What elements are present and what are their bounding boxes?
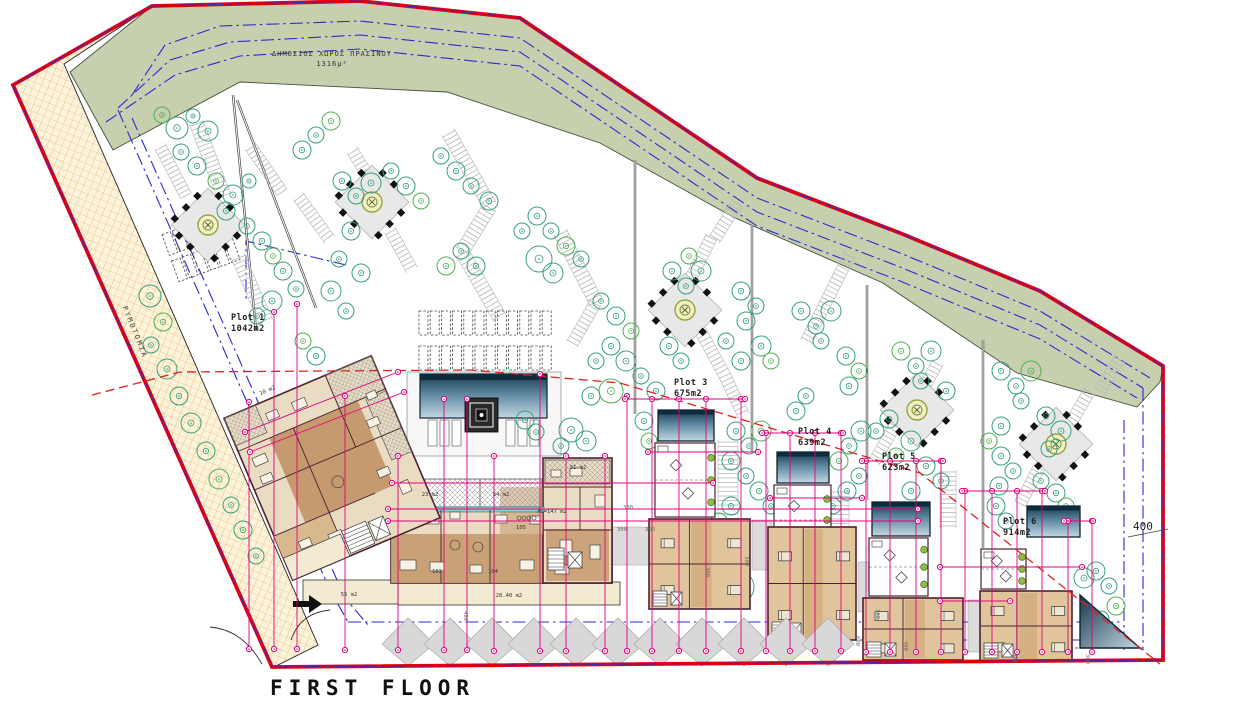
dashed-square (453, 346, 462, 370)
tree-symbol (307, 347, 325, 365)
walkway-rung (302, 205, 312, 212)
walkway-rung (818, 305, 829, 310)
tree-center (215, 180, 217, 182)
walkway-rung (702, 341, 713, 347)
walkway-rung (248, 292, 261, 297)
villa-bed (941, 612, 954, 621)
walkway-rung (168, 169, 179, 175)
walkway-rung (274, 185, 284, 192)
walkway-ladder (567, 299, 601, 347)
dimension-end-dot (403, 391, 405, 393)
tree-symbol (322, 112, 340, 130)
tree-center (625, 360, 627, 362)
villa-pool-edge (777, 452, 829, 457)
walkway-rung (305, 209, 315, 216)
tree-center (846, 490, 848, 492)
site-plan-page: ΔΗΜΟΣΙΟΣ ΧΩΡΟΣ ΠΡΑΣΙΝΟΥ 1316μ² ΡΥΜΟΤΟΜΙΑ… (0, 0, 1241, 726)
tree-center (350, 230, 352, 232)
walkway-rung (698, 251, 709, 256)
tree-center (162, 321, 164, 323)
walkway-ladder (442, 129, 496, 210)
tree-symbol (274, 262, 292, 280)
walkway-rail (303, 192, 335, 236)
dimension-end-dot (248, 401, 250, 403)
tree-center (149, 295, 151, 297)
walkway-rung (733, 402, 744, 407)
tree-center (998, 485, 1000, 487)
dimension-end-dot (889, 651, 891, 653)
tree-center (685, 285, 687, 287)
pergola-plaza (1012, 400, 1100, 488)
tree-symbol (751, 336, 771, 356)
tree-symbol (808, 318, 824, 334)
terrace-plant (921, 564, 928, 571)
tree-center (190, 422, 192, 424)
tree-center (1030, 370, 1032, 372)
tree-center (440, 155, 442, 157)
walkway-rung (930, 365, 941, 371)
villa-pool (777, 452, 829, 483)
plot-name-label: Plot 3 (674, 378, 708, 388)
tree-center (370, 182, 372, 184)
walkway-rung (555, 231, 567, 237)
tree-symbol (188, 157, 206, 175)
plot-label-group: Plot 3675m2 (674, 378, 708, 399)
central-pool-complex (407, 372, 561, 456)
walkway-rung (574, 328, 584, 334)
tree-symbol (718, 333, 734, 349)
villa-bed (728, 539, 741, 548)
dimension-end-dot (1063, 520, 1065, 522)
tree-symbol (433, 148, 449, 164)
tree-center (858, 475, 860, 477)
walkway-rung (243, 280, 256, 285)
tree-center (995, 505, 997, 507)
tree-center (345, 310, 347, 312)
tree-symbol (992, 447, 1010, 465)
dashed-square (509, 346, 518, 370)
tree-symbol (453, 243, 469, 259)
tree-center (988, 440, 990, 442)
dashed-square (542, 311, 551, 335)
walkway-rail (385, 233, 407, 273)
tree-center (1048, 448, 1050, 450)
tree-center (1045, 415, 1047, 417)
walkway-rung (390, 237, 401, 243)
walkway-rung (559, 239, 571, 245)
tree-center (180, 151, 182, 153)
walkway-rung (583, 312, 593, 318)
dashed-square (419, 311, 428, 335)
dimension-end-dot (397, 455, 399, 457)
walkway-rung (357, 164, 367, 170)
dimension-end-dot (387, 520, 389, 522)
villa-plot4 (768, 452, 856, 640)
walkway-rung (715, 364, 726, 370)
tree-symbol (437, 257, 455, 275)
tree-center (1115, 605, 1117, 607)
room-area-label: 34 m2 (493, 492, 510, 498)
dashed-square-row (419, 346, 551, 370)
dashed-square (520, 346, 529, 370)
tree-center (680, 360, 682, 362)
dimension-value-label: 300 (874, 609, 880, 619)
green-space-area-shape (70, 1, 1163, 407)
tree-symbol (732, 282, 750, 300)
walkway-rung (721, 377, 732, 382)
walkway-rung (826, 289, 837, 294)
walkway-rail (468, 210, 496, 256)
tree-center (538, 258, 540, 260)
dimension-end-dot (466, 398, 468, 400)
villa-bed (1052, 643, 1065, 652)
dimension-end-dot (712, 482, 714, 484)
walkway-rung (719, 373, 730, 378)
villa-pool-edge (1027, 506, 1080, 511)
tree-symbol (173, 144, 189, 160)
dimension-end-dot (1041, 651, 1043, 653)
walkway-rung (704, 239, 715, 244)
tree-center (760, 345, 762, 347)
walkway-rung (174, 181, 185, 187)
walkway-rung (570, 336, 580, 342)
plot-area-label: 914m2 (1003, 528, 1031, 538)
tree-symbol (987, 497, 1005, 515)
tree-center (725, 340, 727, 342)
dashed-square (475, 311, 484, 335)
tree-symbol (750, 482, 768, 500)
dimension-end-dot (626, 650, 628, 652)
tree-center (1000, 425, 1002, 427)
tree-center (920, 380, 922, 382)
tree-symbol (288, 281, 304, 297)
walkway-rung (709, 353, 720, 359)
room-area-label: 103 (432, 569, 442, 575)
terrace-plant (708, 454, 715, 461)
terrace-plant (1019, 578, 1026, 585)
tree-center (565, 245, 567, 247)
walkway-rung (198, 142, 211, 147)
parking-zigzag (382, 618, 854, 666)
dimension-end-dot (344, 395, 346, 397)
dashed-square (182, 254, 198, 278)
walkway-rail (255, 143, 287, 189)
room-area-label: A5=147 m2 (537, 509, 567, 515)
tree-center (668, 345, 670, 347)
dimension-end-dot (1091, 651, 1093, 653)
walkway-rung (932, 361, 943, 367)
tree-symbol (673, 353, 689, 369)
plot-name-label: Plot 5 (882, 452, 916, 462)
walkway-rung (1075, 404, 1085, 410)
walkway-rung (713, 231, 723, 237)
tree-center (150, 344, 152, 346)
walkway-rung (162, 157, 173, 163)
dimension-end-dot (273, 311, 275, 313)
tree-symbol (593, 293, 609, 309)
tree-center (655, 390, 657, 392)
room-area-label: 105 (516, 525, 526, 531)
tree-center (1095, 570, 1097, 572)
walkway-rung (723, 381, 734, 386)
walkway-ladder (293, 192, 335, 243)
tree-center (805, 395, 807, 397)
villa-pool (872, 502, 930, 536)
dimension-end-dot (917, 520, 919, 522)
tree-center (845, 355, 847, 357)
tree-center (248, 180, 250, 182)
tree-center (1055, 492, 1057, 494)
dimension-end-dot (861, 460, 863, 462)
walkway-rung (702, 243, 713, 248)
tree-center (161, 114, 163, 116)
tree-symbol (543, 263, 563, 283)
walkway-rung (353, 156, 363, 162)
dashed-square (453, 311, 462, 335)
tree-symbol (253, 232, 271, 250)
dimension-end-dot (296, 303, 298, 305)
walkway-rung (883, 434, 893, 440)
tree-center (315, 134, 317, 136)
tree-center (225, 210, 227, 212)
dimension-end-dot (769, 497, 771, 499)
tree-center (590, 395, 592, 397)
walkway-rung (355, 160, 365, 166)
walkway-rung (579, 320, 589, 326)
walkway-rung (567, 340, 577, 346)
tree-symbol (635, 412, 653, 430)
dashed-square (464, 346, 473, 370)
green-space-label: ΔΗΜΟΣΙΟΣ ΧΩΡΟΣ ΠΡΑΣΙΝΟΥ (272, 50, 392, 58)
pergola-plaza (641, 266, 729, 354)
walkway-rung (727, 389, 738, 394)
tree-center (848, 445, 850, 447)
walkway-rung (711, 357, 722, 363)
dimension-end-dot (249, 451, 251, 453)
tree-symbol (851, 468, 867, 484)
walkway-rung (717, 368, 728, 374)
tree-symbol (830, 452, 848, 470)
site-plan-canvas: ΔΗΜΟΣΙΟΣ ΧΩΡΟΣ ΠΡΑΣΙΝΟΥ 1316μ² ΡΥΜΟΤΟΜΙΑ… (0, 0, 1241, 726)
walkway-rung (585, 309, 595, 315)
tree-center (1108, 585, 1110, 587)
triangular-pool (1080, 595, 1140, 648)
tree-center (460, 250, 462, 252)
walkway-rung (824, 293, 835, 298)
tree-center (445, 265, 447, 267)
tree-center (475, 265, 477, 267)
dashed-square (497, 346, 506, 370)
walkway-rung (267, 174, 277, 181)
tree-center (521, 230, 523, 232)
dimension-end-dot (493, 650, 495, 652)
villa-bed (1052, 606, 1065, 615)
tree-symbol (660, 337, 678, 355)
tree-symbol (383, 163, 399, 179)
dimension-end-dot (842, 432, 844, 434)
walkway-rung (176, 185, 187, 191)
dashed-square (441, 311, 450, 335)
tree-symbol (265, 248, 281, 264)
dashed-square (441, 346, 450, 370)
walkway-rung (713, 360, 724, 366)
walkway-rung (234, 259, 247, 264)
tree-symbol (992, 362, 1010, 380)
walkway-rung (277, 189, 287, 196)
tree-center (302, 340, 304, 342)
tree-symbol (1087, 562, 1105, 580)
walkway-rung (575, 271, 587, 277)
tree-center (910, 440, 912, 442)
tree-symbol (1107, 597, 1125, 615)
walkway-rail (456, 202, 484, 248)
walkway-rung (166, 165, 177, 171)
tree-center (748, 445, 750, 447)
villa-bed (837, 611, 850, 620)
tree-center (700, 270, 702, 272)
tree-symbol (602, 337, 620, 355)
tree-center (1012, 470, 1014, 472)
floor-title: FIRST FLOOR (270, 676, 475, 700)
tree-symbol (681, 248, 697, 264)
dashed-square (509, 311, 518, 335)
tree-center (688, 255, 690, 257)
dimension-value-label: 300 (1084, 654, 1090, 664)
dimension-value-label: 400 (462, 611, 468, 621)
tree-center (315, 355, 317, 357)
tree-center (595, 360, 597, 362)
dashed-square (430, 311, 439, 335)
tree-center (242, 529, 244, 531)
walkway-rung (1073, 408, 1083, 414)
walkway-rail (577, 305, 601, 347)
tree-symbol (821, 301, 841, 321)
walkway-rung (348, 149, 358, 155)
walkway-rung (318, 227, 328, 234)
dimension-end-dot (604, 650, 606, 652)
tree-center (610, 345, 612, 347)
walkway-rung (170, 173, 181, 179)
walkway-rung (350, 152, 360, 158)
tree-symbol (623, 323, 639, 339)
dimension-end-dot (1044, 490, 1046, 492)
tree-center (246, 225, 248, 227)
tree-center (360, 272, 362, 274)
walkway-rung (272, 181, 282, 188)
tree-center (282, 270, 284, 272)
tree-center (820, 340, 822, 342)
tree-symbol (463, 178, 479, 194)
walkway-rung (403, 260, 414, 266)
tree-center (1000, 455, 1002, 457)
tree-center (630, 330, 632, 332)
dimension-end-dot (678, 650, 680, 652)
dimension-end-dot (744, 398, 746, 400)
tree-symbol (293, 141, 311, 159)
tree-symbol (738, 468, 754, 484)
dimension-end-dot (814, 650, 816, 652)
tree-center (271, 300, 273, 302)
plot-label-group: Plot 11042m2 (231, 313, 265, 334)
walkway-rung (405, 264, 416, 270)
room-area-label: 104 (488, 569, 499, 575)
dimension-end-dot (443, 398, 445, 400)
tree-center (745, 475, 747, 477)
dashed-square (531, 346, 540, 370)
tree-center (830, 310, 832, 312)
terrace-plant (824, 517, 831, 524)
tree-center (390, 170, 392, 172)
right-dimension-label: 400 (1133, 520, 1153, 533)
walkway-rung (586, 291, 598, 297)
dimension-end-dot (296, 648, 298, 650)
tree-center (536, 215, 538, 217)
dimension-end-dot (1092, 520, 1094, 522)
tree-symbol (722, 452, 740, 470)
dimension-end-dot (861, 497, 863, 499)
tree-center (858, 370, 860, 372)
plot-name-label: Plot 1 (231, 313, 265, 323)
tree-center (301, 149, 303, 151)
tree-symbol (333, 172, 351, 190)
tree-center (832, 505, 834, 507)
dimension-end-dot (539, 373, 541, 375)
tree-symbol (526, 246, 552, 272)
walkway-rung (802, 337, 813, 342)
tree-center (925, 465, 927, 467)
tree-symbol (787, 402, 805, 420)
tree-symbol (321, 281, 341, 301)
dimension-end-dot (961, 490, 963, 492)
walkway-rung (313, 220, 323, 227)
dimension-end-dot (466, 649, 468, 651)
tree-symbol (166, 117, 188, 139)
tree-symbol (813, 333, 829, 349)
tree-center (232, 194, 234, 196)
dimension-value-label: 400 (902, 641, 908, 651)
walkway-rung (715, 227, 725, 233)
fountain-structure (465, 398, 498, 432)
walkway-rung (399, 253, 410, 259)
walkway-rung (172, 177, 183, 183)
tree-center (355, 195, 357, 197)
tree-center (770, 360, 772, 362)
dimension-end-dot (397, 371, 399, 373)
dimension-end-dot (1081, 566, 1083, 568)
walkway-rung (1021, 489, 1032, 495)
dimension-end-dot (740, 650, 742, 652)
dimension-value-label: 300 (1011, 653, 1017, 663)
tree-symbol (798, 388, 814, 404)
tree-center (560, 445, 562, 447)
villa-stair (867, 642, 881, 657)
walkway-rail (245, 149, 277, 195)
plot-area-label: 623m2 (882, 463, 910, 473)
dimension-end-dot (244, 431, 246, 433)
tree-center (550, 230, 552, 232)
walkway-rail (155, 149, 181, 199)
walkway-rung (885, 431, 895, 437)
tree-symbol (851, 363, 867, 379)
walkway-rail (554, 235, 590, 305)
walkway-rung (1077, 400, 1087, 406)
dimension-end-dot (565, 455, 567, 457)
plot-name-label: Plot 4 (798, 427, 832, 437)
walkway-rung (392, 241, 403, 247)
walkway-rung (300, 201, 310, 208)
dashed-square (464, 311, 473, 335)
dimension-end-dot (789, 650, 791, 652)
